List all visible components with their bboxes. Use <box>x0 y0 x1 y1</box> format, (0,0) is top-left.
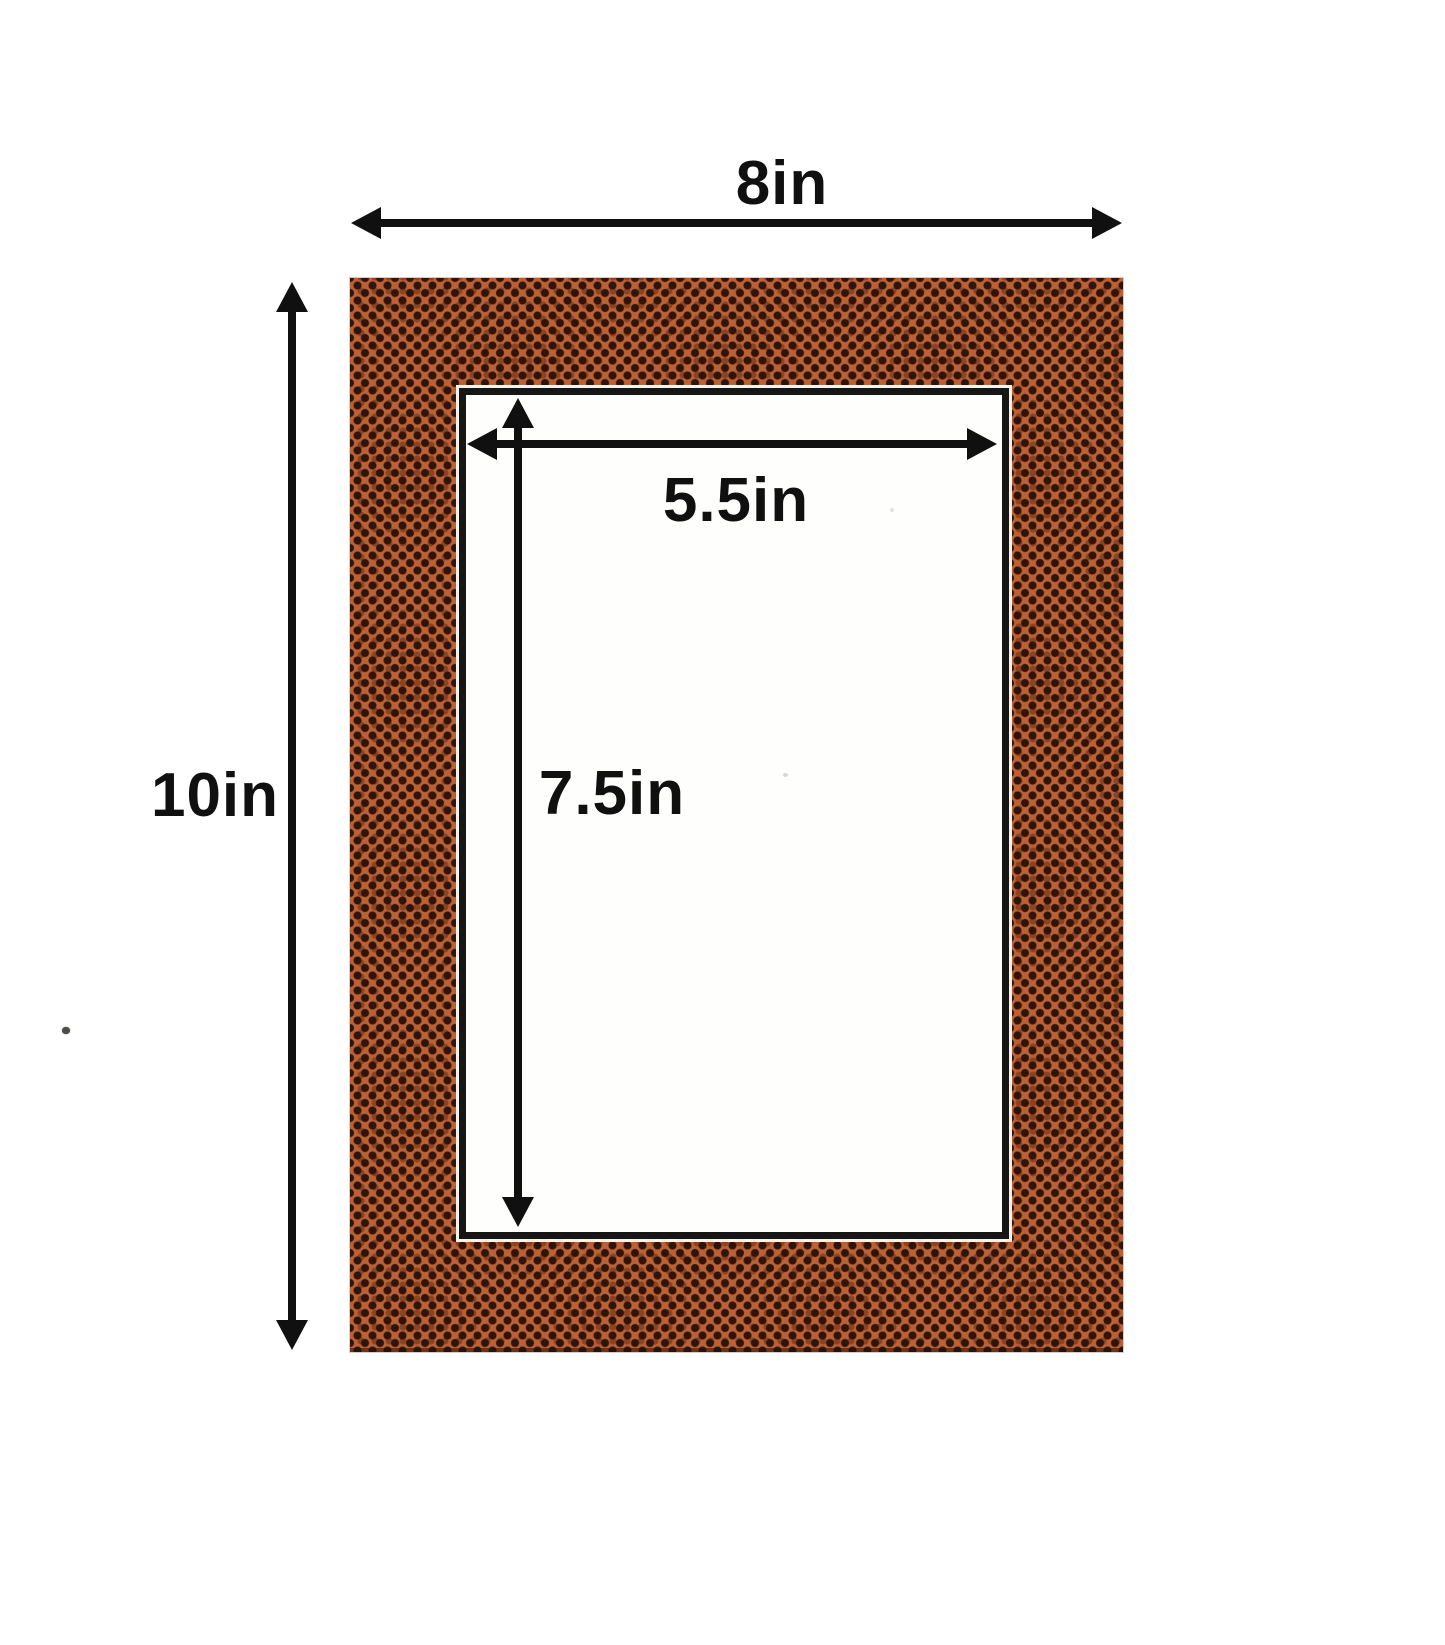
arrowhead-right-icon <box>1092 207 1122 239</box>
opening-height-arrow <box>502 398 534 1227</box>
arrow-shaft <box>381 219 1092 227</box>
arrow-shaft <box>497 440 967 448</box>
opening-height-label: 7.5in <box>539 763 685 825</box>
arrowhead-left-icon <box>467 428 497 460</box>
arrow-shaft <box>288 312 296 1320</box>
outer-height-arrow <box>276 282 308 1350</box>
arrowhead-up-icon <box>502 398 534 428</box>
arrowhead-down-icon <box>276 1320 308 1350</box>
opening-width-arrow <box>467 428 997 460</box>
dust-speck <box>890 508 894 512</box>
product-diagram: 8in 10in 5.5in 7.5in <box>0 0 1445 1645</box>
arrowhead-down-icon <box>502 1197 534 1227</box>
arrowhead-left-icon <box>351 207 381 239</box>
arrowhead-up-icon <box>276 282 308 312</box>
opening-width-label: 5.5in <box>663 470 809 532</box>
outer-width-label: 8in <box>736 153 829 215</box>
outer-height-label: 10in <box>151 765 279 827</box>
dust-speck <box>783 773 788 777</box>
arrow-shaft <box>514 428 522 1197</box>
dust-speck <box>62 1027 70 1034</box>
arrowhead-right-icon <box>967 428 997 460</box>
